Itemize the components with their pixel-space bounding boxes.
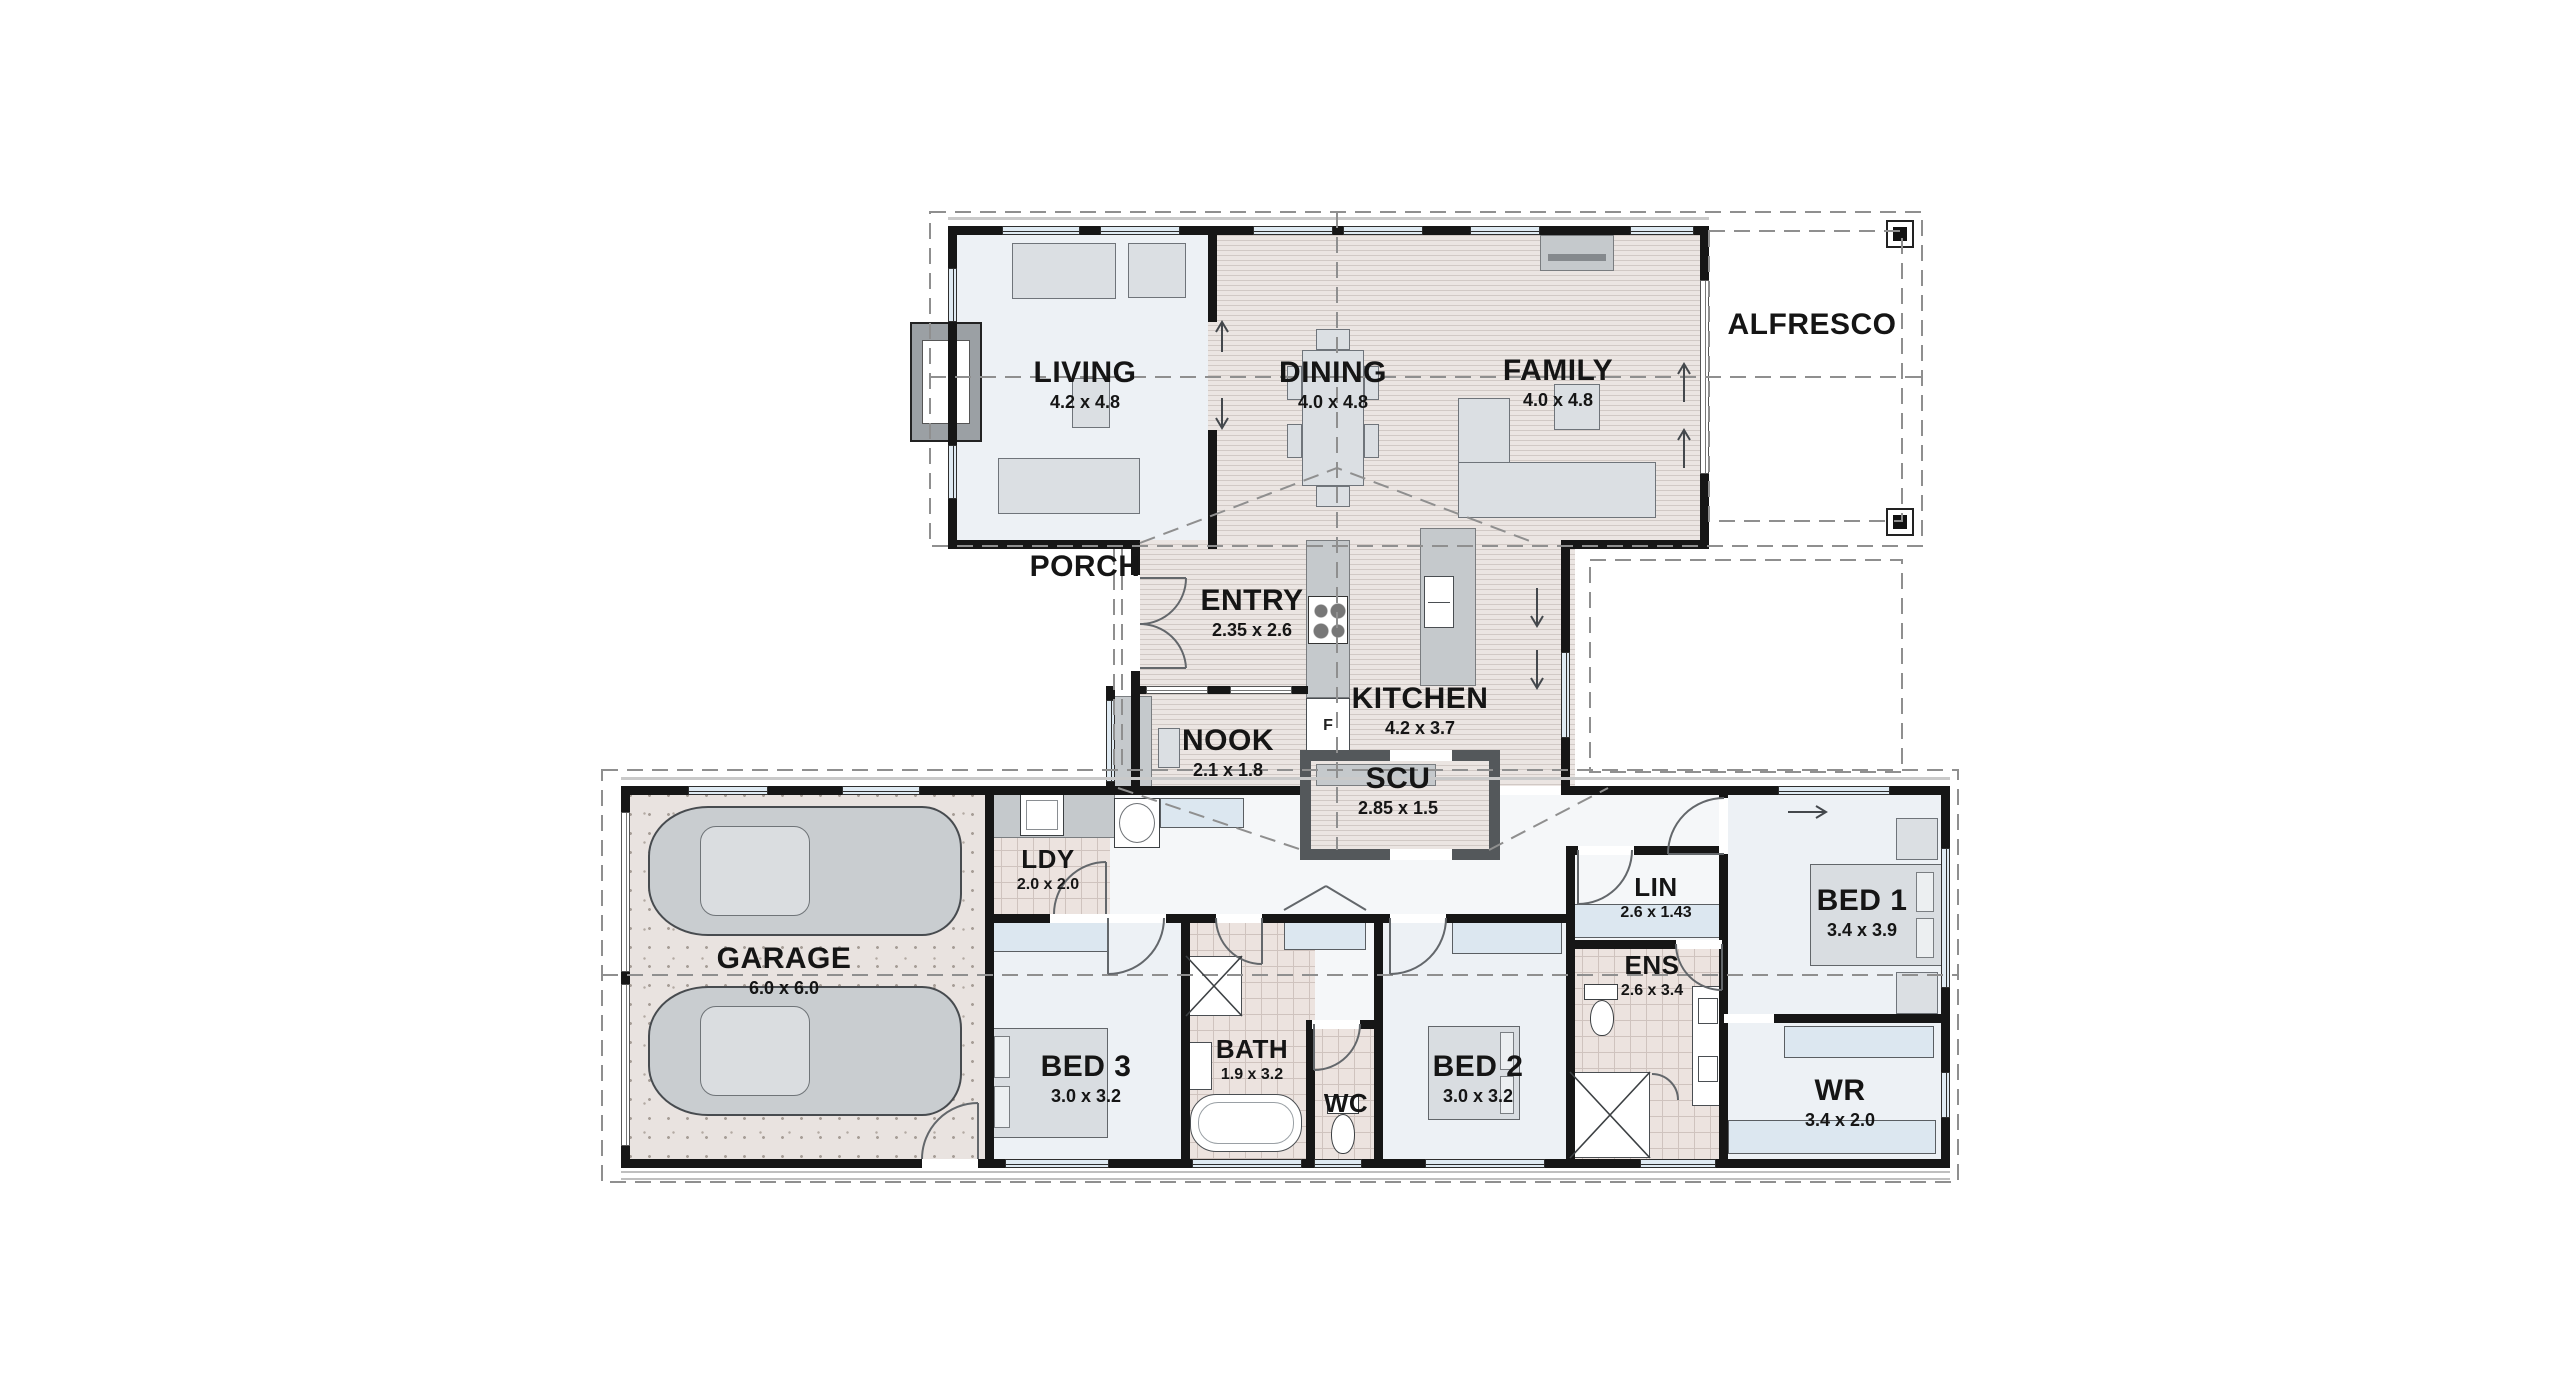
room-label-alfresco: ALFRESCO <box>1728 310 1897 340</box>
armchair-icon <box>1128 243 1186 298</box>
hall-shelf <box>1160 798 1244 828</box>
garage-door-icon <box>621 812 630 972</box>
fridge-label: F <box>1306 698 1350 754</box>
toilet-bowl-icon <box>1331 1114 1355 1154</box>
room-label-kitchen: KITCHEN 4.2 x 3.7 <box>1352 684 1489 737</box>
garage-door-icon <box>621 984 630 1146</box>
sofa-icon <box>998 458 1140 514</box>
scullery-opening <box>1390 849 1452 860</box>
window-icon <box>1630 226 1694 235</box>
room-label-lin: LIN 2.6 x 1.43 <box>1620 874 1691 921</box>
chair-icon <box>1287 424 1302 458</box>
window-icon <box>1941 848 1950 988</box>
window-icon <box>1192 1159 1302 1168</box>
cavity-slider-icon <box>1146 686 1208 694</box>
chair-icon <box>1364 424 1379 458</box>
room-label-bath: BATH 1.9 x 3.2 <box>1216 1036 1288 1083</box>
bed1-door-gap <box>1719 798 1728 854</box>
linen-door-gap <box>1578 846 1634 855</box>
bedside-table-icon <box>1896 972 1938 1014</box>
wardrobe-opening <box>1724 1014 1774 1023</box>
window-icon <box>1941 1072 1950 1118</box>
bedside-table-icon <box>1896 818 1938 860</box>
car-windshield <box>700 826 810 916</box>
bed2-wardrobe <box>1452 922 1562 954</box>
shower-icon <box>1570 1072 1650 1158</box>
floor-plan-canvas: F <box>0 0 2560 1395</box>
window-icon <box>688 786 768 795</box>
window-icon <box>1314 1159 1362 1168</box>
bed3-door-gap <box>1108 914 1166 923</box>
window-icon <box>1253 226 1333 235</box>
basin-icon <box>1698 1056 1718 1082</box>
car-windshield <box>700 1006 810 1096</box>
room-label-entry: ENTRY 2.35 x 2.6 <box>1200 586 1303 639</box>
entry-door-gap <box>1131 575 1140 671</box>
pillow-icon <box>994 1036 1010 1078</box>
wall <box>1561 540 1709 549</box>
tv-icon <box>1548 254 1606 261</box>
room-label-scu: SCU 2.85 x 1.5 <box>1358 764 1438 817</box>
window-icon <box>1343 226 1423 235</box>
room-label-dining: DINING 4.0 x 4.8 <box>1279 358 1387 411</box>
wall <box>1208 226 1217 322</box>
basin-icon <box>1698 998 1718 1024</box>
window-icon <box>1470 226 1540 235</box>
path-line <box>621 1171 1950 1173</box>
window-icon <box>1100 226 1180 235</box>
room-label-living: LIVING 4.2 x 4.8 <box>1033 358 1136 411</box>
alfresco-post-icon <box>1886 508 1914 536</box>
cooktop-icon <box>1308 596 1348 644</box>
window-icon <box>1425 1159 1545 1168</box>
corner-sofa-icon <box>1458 462 1656 518</box>
fireplace-icon <box>922 340 970 424</box>
bed2-door-gap <box>1390 914 1446 923</box>
toilet-bowl-icon <box>1590 1000 1614 1036</box>
tv-unit-icon <box>1540 235 1614 271</box>
room-label-bed2: BED 2 3.0 x 3.2 <box>1433 1052 1524 1105</box>
path-line <box>621 1178 1950 1180</box>
wall <box>1374 914 1383 1168</box>
window-icon <box>1561 652 1570 738</box>
room-label-wc: WC <box>1324 1090 1368 1116</box>
washing-machine-icon <box>1020 794 1064 836</box>
wall <box>1208 430 1217 549</box>
window-icon <box>1002 226 1080 235</box>
cavity-slider-icon <box>1230 686 1292 694</box>
scullery-opening <box>1390 750 1452 761</box>
room-label-wr: WR 3.4 x 2.0 <box>1805 1076 1875 1129</box>
pillow-icon <box>1916 872 1934 912</box>
room-label-ens: ENS 2.6 x 3.4 <box>1621 952 1683 999</box>
room-label-family: FAMILY 4.0 x 4.8 <box>1503 356 1613 409</box>
room-label-bed1: BED 1 3.4 x 3.9 <box>1817 886 1908 939</box>
laundry-door-gap <box>1050 914 1108 923</box>
hall-opening <box>1500 786 1561 795</box>
window-icon <box>1640 1159 1716 1168</box>
chair-icon <box>1316 329 1350 350</box>
ensuite-door-gap <box>1676 940 1722 949</box>
wall <box>1566 846 1575 1168</box>
bed3-wardrobe <box>990 922 1108 952</box>
window-icon <box>948 268 957 322</box>
bathtub-icon <box>1190 1094 1302 1152</box>
wc-door-gap <box>1312 1020 1360 1029</box>
window-icon <box>1778 786 1890 795</box>
room-label-garage: GARAGE 6.0 x 6.0 <box>717 944 852 997</box>
shower-icon <box>1186 956 1242 1016</box>
sill-line <box>621 777 1950 780</box>
pillow-icon <box>1916 918 1934 958</box>
sill-line <box>948 217 1709 220</box>
wardrobe-shelf <box>1784 1026 1934 1058</box>
wall <box>621 786 1950 795</box>
chair-icon <box>1316 486 1350 507</box>
room-label-bed3: BED 3 3.0 x 3.2 <box>1041 1052 1132 1105</box>
wall <box>948 540 1140 549</box>
window-icon <box>1106 700 1115 782</box>
window-icon <box>948 445 957 499</box>
kitchen-sink-icon <box>1424 576 1454 628</box>
pillow-icon <box>994 1086 1010 1128</box>
wall <box>1181 914 1190 1168</box>
room-label-ldy: LDY 2.0 x 2.0 <box>1017 846 1079 893</box>
hall-closet <box>1284 920 1366 950</box>
bath-door-gap <box>1216 914 1262 923</box>
wall <box>985 786 994 1168</box>
stacker-door-icon <box>1700 280 1709 474</box>
alfresco-post-icon <box>1886 220 1914 248</box>
window-icon <box>842 786 920 795</box>
room-label-porch: PORCH <box>1030 552 1141 582</box>
wall <box>1306 1020 1315 1168</box>
laundry-tub-icon <box>1114 798 1160 848</box>
desk-chair-icon <box>1158 728 1180 768</box>
toilet-icon <box>1584 984 1618 1000</box>
room-label-nook: NOOK 2.1 x 1.8 <box>1182 726 1274 779</box>
sofa-icon <box>1012 243 1116 299</box>
window-icon <box>1005 1159 1109 1168</box>
garage-rear-door-gap <box>922 1159 978 1168</box>
